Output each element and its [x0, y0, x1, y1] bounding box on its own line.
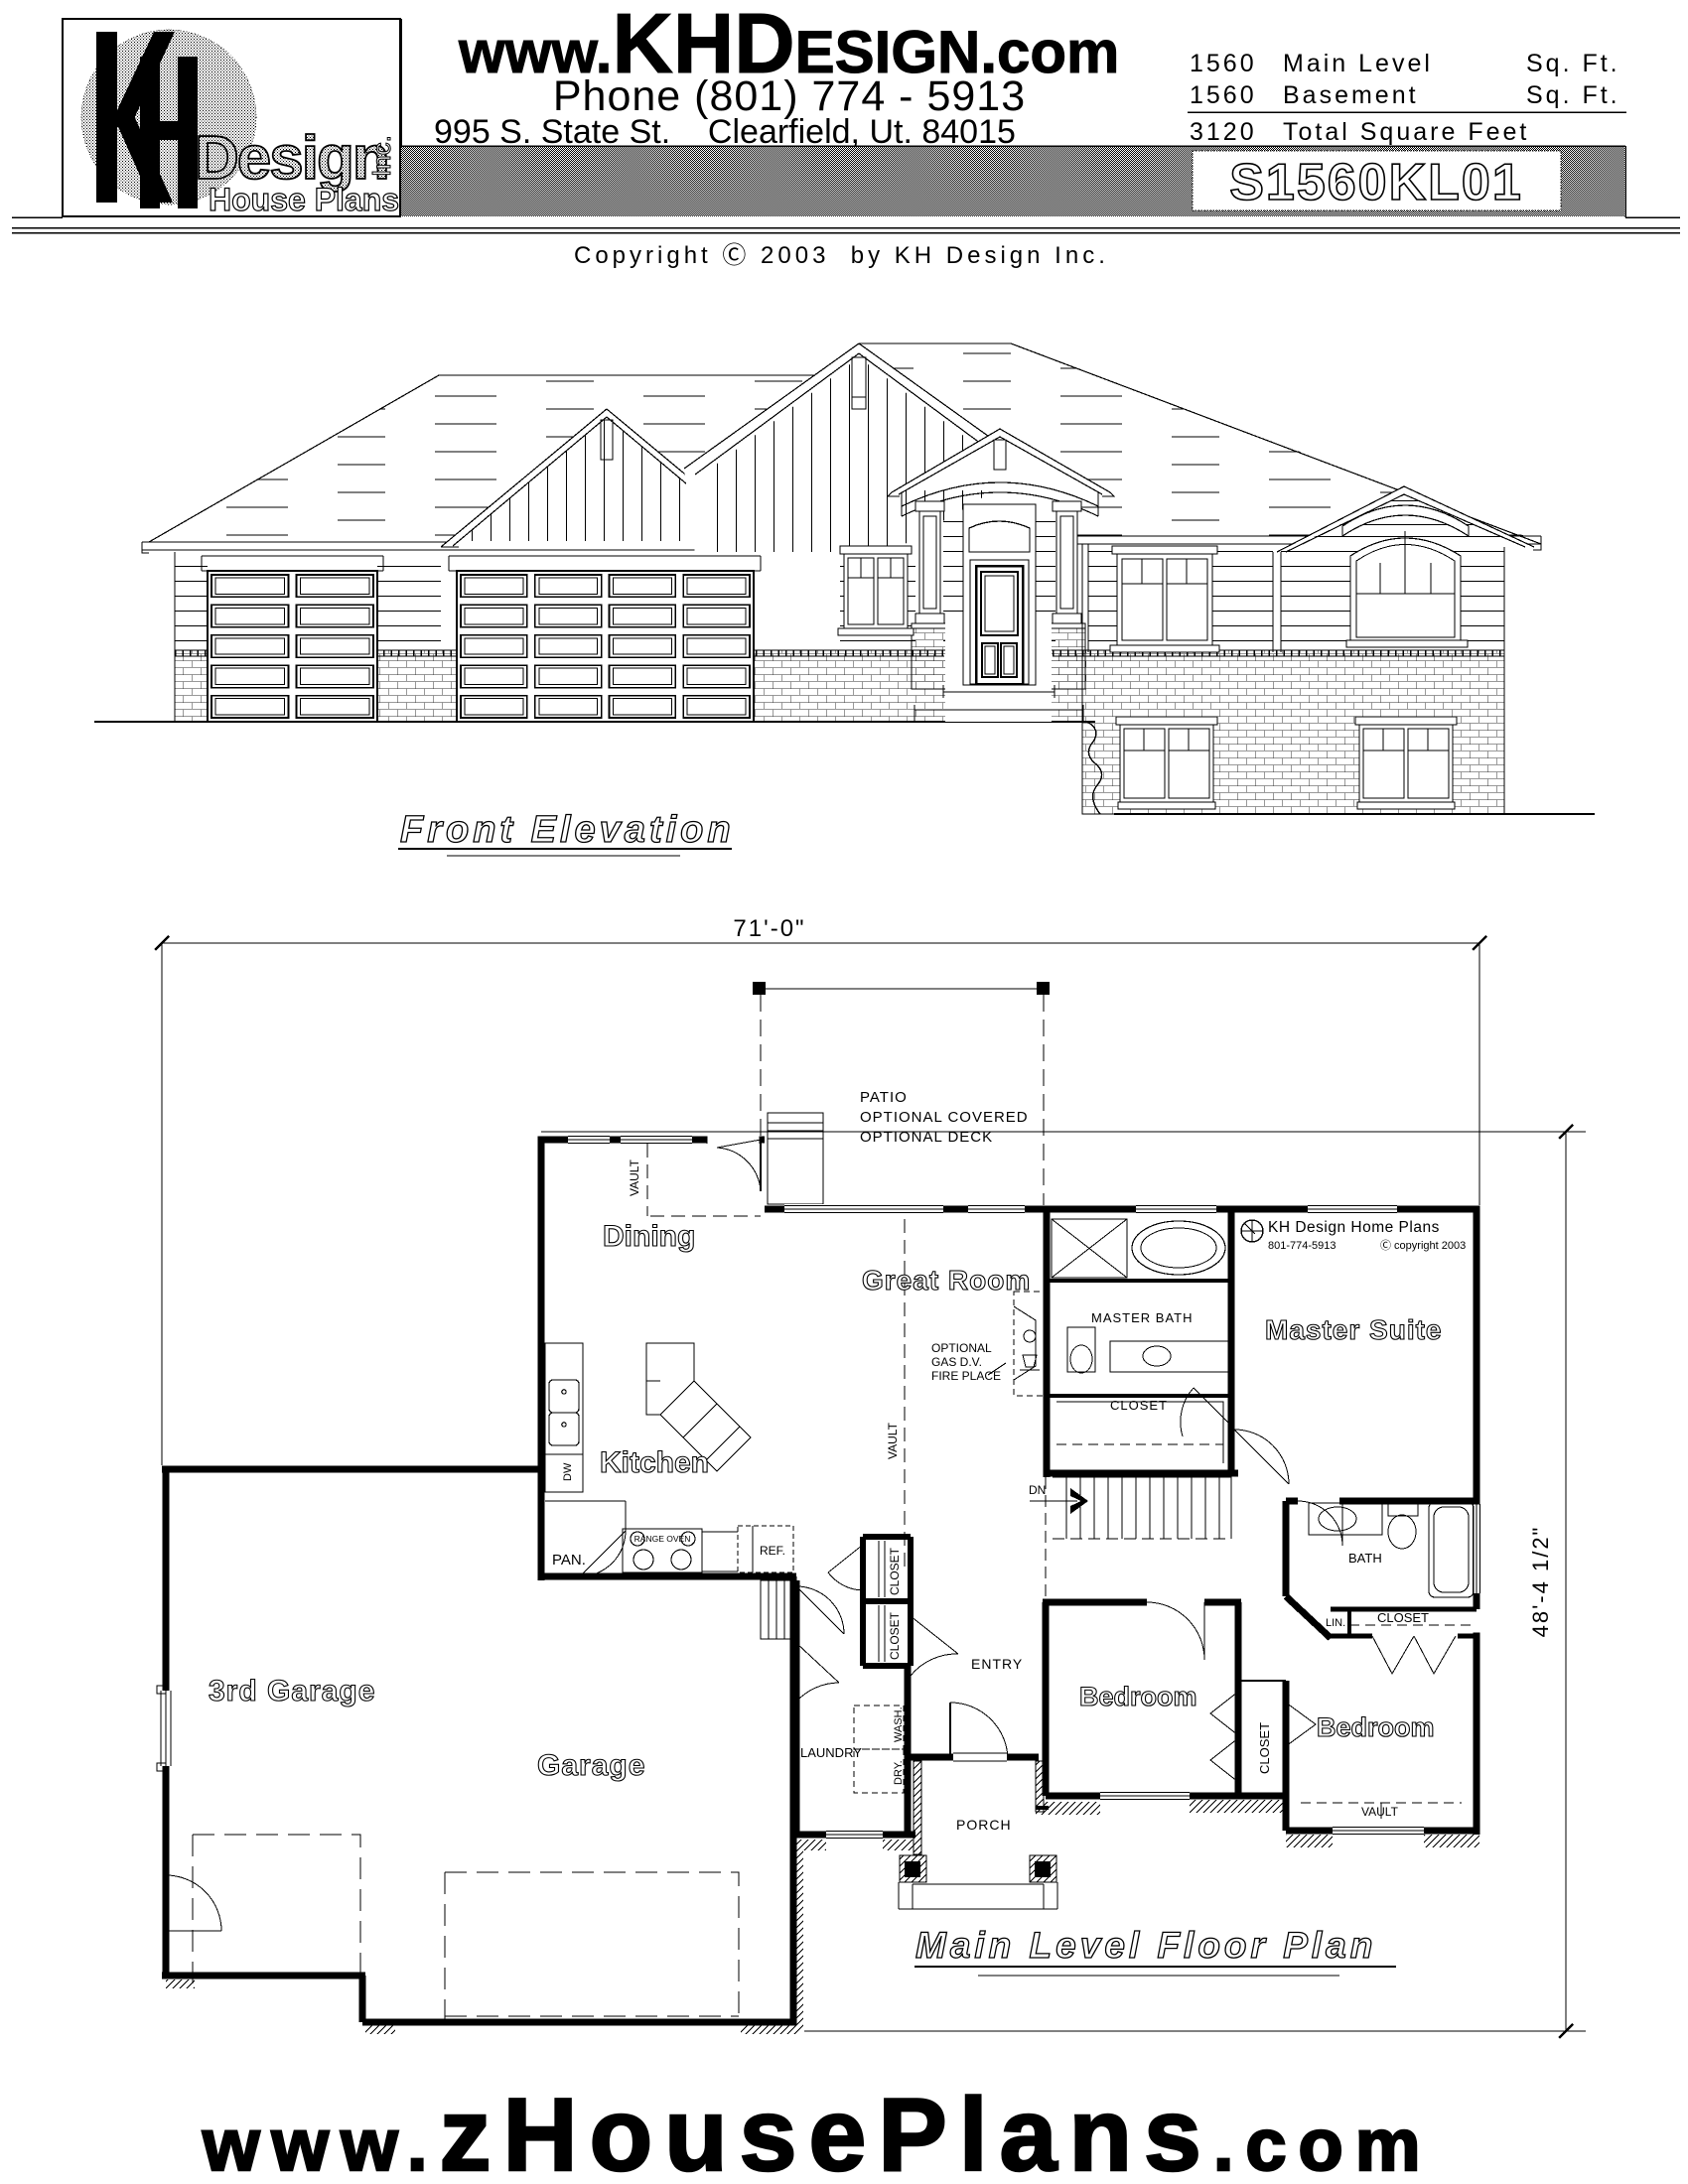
svg-text:DW: DW	[562, 1462, 574, 1481]
svg-text:Garage: Garage	[537, 1749, 645, 1782]
svg-text:48'-4 1/2": 48'-4 1/2"	[1528, 1526, 1553, 1638]
svg-text:801-774-5913: 801-774-5913	[1268, 1240, 1336, 1252]
svg-text:CLOSET: CLOSET	[888, 1611, 902, 1660]
svg-text:CLOSET: CLOSET	[1377, 1610, 1429, 1625]
svg-text:1560: 1560	[1190, 81, 1257, 109]
svg-text:Master Suite: Master Suite	[1265, 1314, 1443, 1345]
svg-text:REF.: REF.	[760, 1544, 785, 1558]
svg-text:BATH: BATH	[1348, 1551, 1382, 1566]
svg-text:WASH.: WASH.	[893, 1706, 905, 1742]
svg-text:Bedroom: Bedroom	[1079, 1682, 1197, 1711]
svg-text:KH Design Home Plans: KH Design Home Plans	[1268, 1219, 1440, 1236]
svg-text:Inc.: Inc.	[366, 135, 396, 177]
svg-text:ENTRY: ENTRY	[971, 1656, 1023, 1672]
svg-text:Basement: Basement	[1283, 81, 1419, 109]
svg-text:VAULT: VAULT	[628, 1159, 641, 1196]
svg-text:PORCH: PORCH	[956, 1817, 1012, 1833]
svg-text:LIN.: LIN.	[1326, 1617, 1345, 1629]
svg-text:DN: DN	[1029, 1483, 1046, 1497]
svg-text:DRY.: DRY.	[893, 1760, 905, 1785]
svg-text:CLOSET: CLOSET	[1110, 1398, 1168, 1413]
svg-text:LAUNDRY: LAUNDRY	[800, 1745, 862, 1760]
svg-text:FIRE PLACE: FIRE PLACE	[931, 1369, 1001, 1383]
svg-text:OPTIONAL DECK: OPTIONAL DECK	[860, 1129, 993, 1146]
svg-text:PAN.: PAN.	[552, 1552, 586, 1569]
svg-text:Kitchen: Kitchen	[600, 1446, 709, 1479]
svg-text:GAS D.V.: GAS D.V.	[931, 1355, 982, 1369]
svg-text:OPTIONAL: OPTIONAL	[931, 1341, 992, 1355]
svg-text:Ⓒ copyright 2003: Ⓒ copyright 2003	[1380, 1239, 1466, 1252]
svg-text:Great Room: Great Room	[862, 1265, 1031, 1296]
svg-text:Dining: Dining	[603, 1220, 695, 1253]
svg-text:71'-0": 71'-0"	[733, 915, 805, 942]
svg-text:Front Elevation: Front Elevation	[400, 809, 735, 851]
svg-text:Copyright Ⓒ 2003 by KH Design: Copyright Ⓒ 2003 by KH Design Inc.	[574, 242, 1109, 269]
svg-text:PATIO: PATIO	[860, 1089, 908, 1106]
svg-text:Total Square Feet: Total Square Feet	[1283, 118, 1529, 146]
svg-text:Main Level Floor Plan: Main Level Floor Plan	[915, 1925, 1376, 1966]
svg-text:Bedroom: Bedroom	[1317, 1712, 1435, 1742]
svg-text:S1560KL01: S1560KL01	[1229, 154, 1523, 211]
svg-text:CLOSET: CLOSET	[888, 1547, 902, 1595]
svg-text:CLOSET: CLOSET	[1257, 1722, 1272, 1774]
svg-text:Main Level: Main Level	[1283, 50, 1433, 77]
svg-text:Sq. Ft.: Sq. Ft.	[1526, 50, 1620, 77]
svg-text:House Plans: House Plans	[209, 182, 399, 217]
svg-text:1560: 1560	[1190, 50, 1257, 77]
svg-text:RANGE OVEN: RANGE OVEN	[634, 1534, 691, 1544]
svg-text:3rd Garage: 3rd Garage	[209, 1675, 375, 1707]
svg-text:MASTER BATH: MASTER BATH	[1091, 1310, 1194, 1325]
svg-text:VAULT: VAULT	[1361, 1805, 1399, 1819]
svg-text:VAULT: VAULT	[886, 1422, 900, 1459]
svg-text:OPTIONAL COVERED: OPTIONAL COVERED	[860, 1109, 1029, 1126]
svg-text:Sq. Ft.: Sq. Ft.	[1526, 81, 1620, 109]
svg-text:3120: 3120	[1190, 118, 1257, 146]
